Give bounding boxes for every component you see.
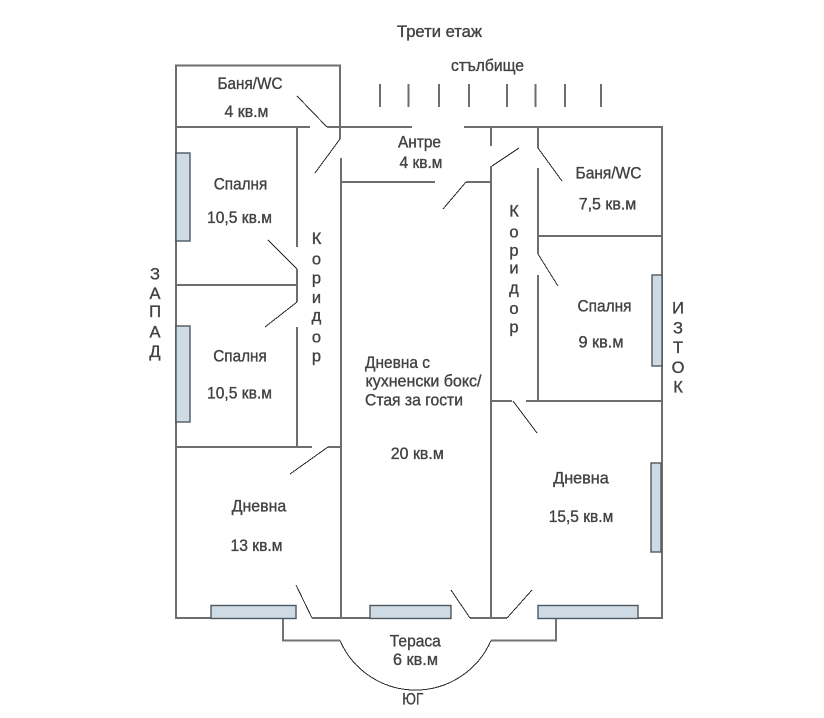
svg-text:13 кв.м: 13 кв.м <box>231 537 283 555</box>
svg-text:кухненски бокс/: кухненски бокс/ <box>366 373 482 391</box>
svg-text:р: р <box>509 319 518 337</box>
svg-text:и: и <box>509 260 518 278</box>
svg-text:4 кв.м: 4 кв.м <box>225 103 269 121</box>
svg-text:З: З <box>150 266 160 284</box>
svg-text:Спалня: Спалня <box>213 348 267 366</box>
svg-text:А: А <box>149 324 160 342</box>
svg-text:4 кв.м: 4 кв.м <box>400 154 443 172</box>
svg-text:Спалня: Спалня <box>214 176 268 194</box>
svg-text:д: д <box>312 307 322 325</box>
svg-text:ЮГ: ЮГ <box>402 691 423 709</box>
svg-text:р: р <box>509 242 518 260</box>
svg-text:Тераса: Тераса <box>390 633 442 651</box>
svg-text:10,5 кв.м: 10,5 кв.м <box>207 385 272 403</box>
svg-text:9 кв.м: 9 кв.м <box>579 334 624 352</box>
svg-text:р: р <box>312 348 321 366</box>
svg-text:о: о <box>509 300 518 318</box>
svg-text:стълбище: стълбище <box>451 57 524 75</box>
svg-text:К: К <box>509 203 519 221</box>
svg-text:6 кв.м: 6 кв.м <box>393 651 438 669</box>
svg-text:15,5 кв.м: 15,5 кв.м <box>549 508 614 526</box>
svg-text:10,5 кв.м: 10,5 кв.м <box>207 209 272 227</box>
svg-text:А: А <box>149 285 160 303</box>
svg-text:Баня/WC: Баня/WC <box>576 165 642 183</box>
svg-text:и: и <box>312 289 321 307</box>
svg-text:Т: Т <box>673 339 683 357</box>
svg-text:З: З <box>673 320 683 338</box>
svg-text:д: д <box>509 280 519 298</box>
svg-text:О: О <box>672 359 685 377</box>
svg-text:р: р <box>312 270 321 288</box>
svg-text:о: о <box>312 251 321 269</box>
svg-text:К: К <box>673 379 683 397</box>
svg-text:о: о <box>312 329 321 347</box>
svg-text:Стая за гости: Стая за гости <box>365 392 463 410</box>
svg-text:К: К <box>312 230 322 248</box>
svg-text:Трети етаж: Трети етаж <box>397 23 482 41</box>
svg-text:Дневна с: Дневна с <box>365 354 430 372</box>
svg-text:20 кв.м: 20 кв.м <box>391 445 444 463</box>
svg-text:И: И <box>672 300 684 318</box>
svg-text:Спалня: Спалня <box>578 298 632 316</box>
svg-text:Антре: Антре <box>398 134 441 152</box>
svg-text:о: о <box>509 224 518 242</box>
svg-text:Дневна: Дневна <box>553 470 609 488</box>
svg-text:Баня/WC: Баня/WC <box>218 75 283 93</box>
svg-text:П: П <box>149 303 161 321</box>
svg-text:Д: Д <box>149 343 160 361</box>
svg-text:Дневна: Дневна <box>232 497 287 515</box>
svg-text:7,5 кв.м: 7,5 кв.м <box>579 196 637 214</box>
